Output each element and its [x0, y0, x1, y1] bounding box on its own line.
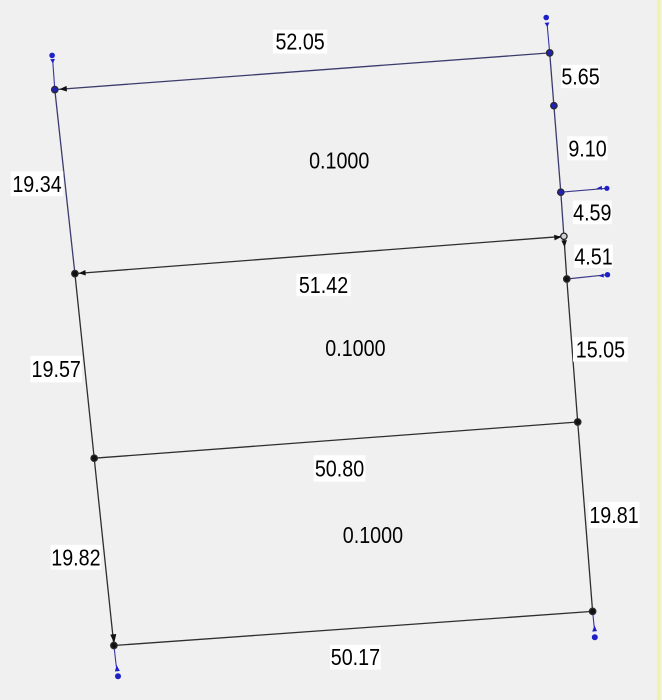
- svg-text:4.51: 4.51: [574, 244, 612, 270]
- svg-text:5.65: 5.65: [561, 64, 599, 90]
- svg-text:19.34: 19.34: [12, 171, 61, 197]
- svg-text:0.1000: 0.1000: [309, 148, 369, 174]
- svg-text:0.1000: 0.1000: [325, 336, 385, 362]
- svg-text:50.80: 50.80: [315, 456, 364, 482]
- svg-text:19.82: 19.82: [51, 545, 100, 571]
- svg-text:0.1000: 0.1000: [343, 523, 403, 549]
- svg-text:50.17: 50.17: [331, 645, 380, 671]
- svg-text:52.05: 52.05: [275, 29, 324, 55]
- svg-text:15.05: 15.05: [576, 337, 625, 363]
- svg-text:19.81: 19.81: [589, 503, 638, 529]
- svg-text:9.10: 9.10: [568, 136, 606, 162]
- svg-text:19.57: 19.57: [32, 357, 81, 383]
- svg-text:51.42: 51.42: [299, 272, 348, 298]
- svg-text:4.59: 4.59: [573, 200, 611, 226]
